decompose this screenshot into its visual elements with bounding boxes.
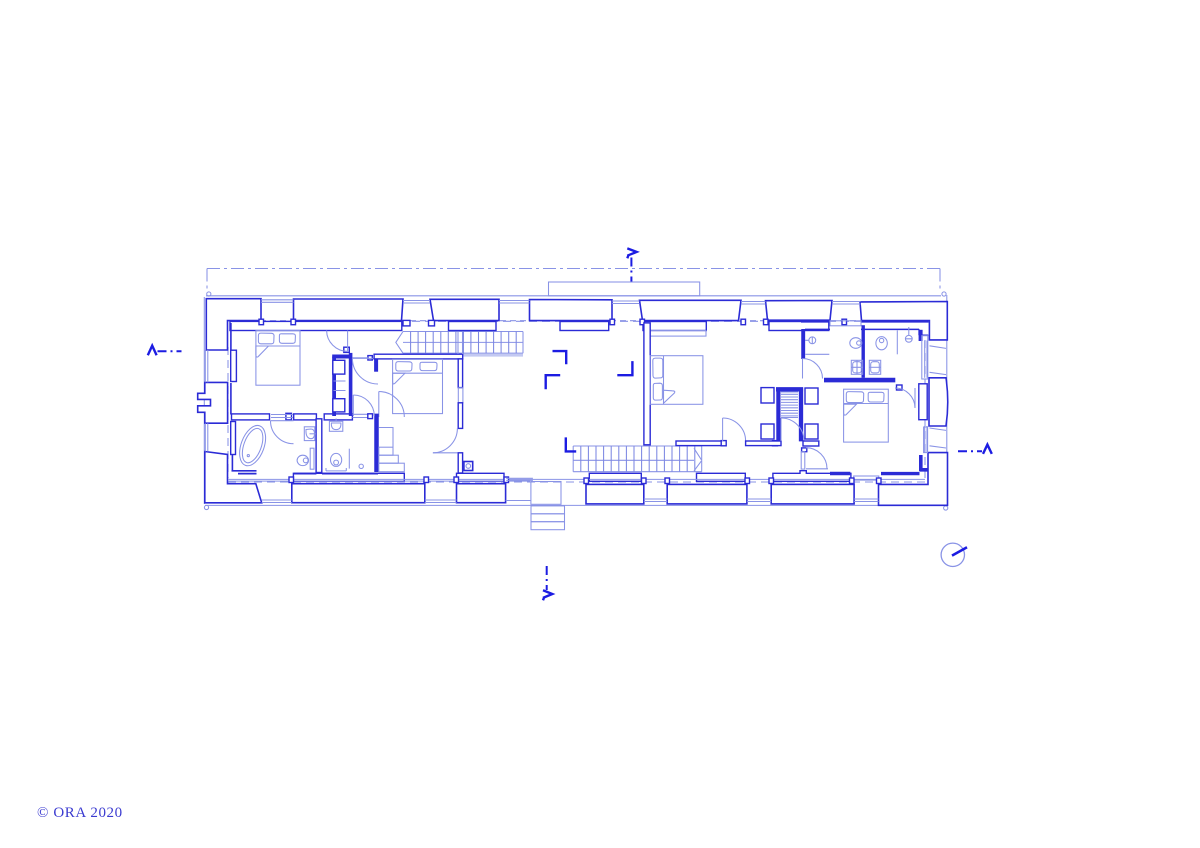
svg-text:© ORA 2020: © ORA 2020 [37, 805, 123, 821]
